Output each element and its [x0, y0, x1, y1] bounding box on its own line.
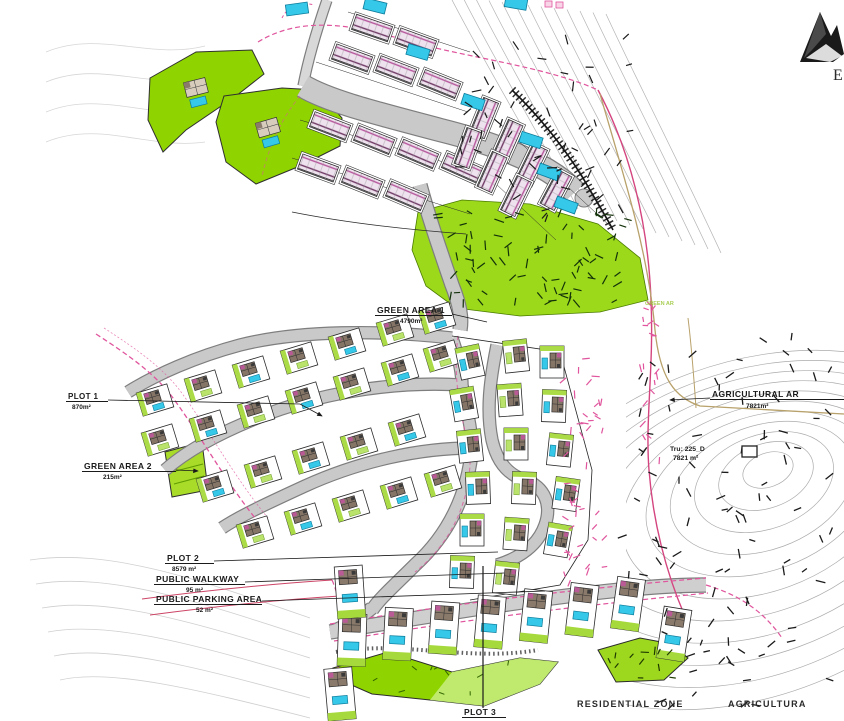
- vegetation-tick: [618, 535, 627, 538]
- vegetation-tick: [619, 225, 626, 227]
- villaNP: [504, 428, 528, 460]
- public-walkway-label: PUBLIC WALKWAY: [156, 574, 239, 584]
- town: [395, 137, 441, 172]
- vegetation-tick: [588, 170, 592, 178]
- residential-zone-label: RESIDENTIAL ZONE: [577, 699, 684, 709]
- green-area-1-size: 4790m²: [400, 318, 423, 325]
- vegetation-tick: [593, 412, 598, 415]
- town: [417, 67, 463, 101]
- contour: [48, 629, 310, 678]
- vegetation-tick: [656, 372, 657, 380]
- public-parking-size: 52 m²: [196, 607, 214, 614]
- vegetation-tick: [788, 627, 796, 628]
- vegetation-tick: [820, 535, 823, 542]
- vegetation-tick: [692, 692, 696, 697]
- vegetation-tick: [602, 428, 603, 434]
- villaT: [324, 667, 356, 721]
- vegetation-tick: [656, 558, 661, 565]
- green-area-2-label: GREEN AREA 2: [84, 461, 152, 471]
- vegetation-tick: [568, 580, 571, 586]
- villaT: [337, 614, 367, 667]
- vegetation-tick: [434, 217, 443, 218]
- vegetation-tick: [738, 649, 745, 653]
- vegetation-tick: [650, 390, 654, 394]
- vegetation-tick: [784, 455, 786, 465]
- vegetation-tick: [743, 680, 751, 681]
- vegetation-tick: [686, 654, 695, 657]
- vegetation-tick: [687, 638, 691, 643]
- villaNP: [280, 342, 318, 374]
- vegetation-tick: [592, 376, 600, 377]
- vegetation-tick: [736, 511, 743, 516]
- green-area-1-label: GREEN AREA 1: [377, 305, 445, 315]
- leader-line: [670, 398, 710, 400]
- contour: [623, 381, 844, 606]
- vegetation-tick: [484, 77, 488, 85]
- villaT: [656, 606, 692, 662]
- vegetation-tick: [726, 372, 734, 378]
- vegetation-tick: [538, 246, 539, 253]
- vegetation-tick: [537, 58, 546, 59]
- vegetation-tick: [640, 421, 646, 427]
- villa: [388, 414, 426, 446]
- vegetation-tick: [642, 435, 645, 440]
- vegetation-tick: [670, 563, 675, 569]
- agricultural-zone-label: AGRICULTURA: [728, 699, 807, 709]
- vegetation-tick: [579, 508, 584, 509]
- pool: [285, 2, 308, 16]
- structure-outline: [742, 446, 757, 457]
- pool: [461, 93, 485, 110]
- villa: [460, 514, 484, 546]
- villaT: [334, 565, 366, 619]
- villaT: [519, 589, 552, 644]
- vegetation-tick: [584, 126, 590, 130]
- vegetation-tick: [585, 167, 594, 171]
- contour: [680, 413, 844, 551]
- vegetation-tick: [546, 234, 547, 243]
- villaT: [383, 607, 414, 660]
- green-strip-light: [430, 658, 558, 706]
- town: [383, 179, 429, 214]
- contour: [30, 557, 310, 618]
- vegetation-tick: [485, 241, 486, 250]
- plot-2-size: 8579 m²: [172, 566, 197, 573]
- vegetation-tick: [716, 495, 725, 499]
- town: [349, 12, 395, 45]
- vegetation-tick: [634, 498, 640, 501]
- vegetation-tick: [586, 379, 591, 385]
- vegetation-tick: [594, 120, 596, 127]
- vegetation-tick: [791, 333, 792, 340]
- contour: [60, 677, 310, 718]
- vegetation-tick: [668, 364, 669, 373]
- vegetation-tick: [759, 493, 760, 500]
- villa: [380, 477, 418, 509]
- vegetation-tick: [560, 378, 566, 383]
- vegetation-tick: [736, 515, 739, 523]
- vegetation-tick: [768, 641, 775, 647]
- villa: [292, 442, 330, 474]
- parcel-ref-line2: 7821 m²: [673, 455, 699, 462]
- vegetation-tick: [495, 119, 502, 125]
- vegetation-tick: [673, 551, 682, 556]
- vegetation-tick: [749, 539, 755, 541]
- vegetation-tick: [595, 511, 599, 515]
- vegetation-tick: [626, 64, 632, 66]
- site-plan-drawing: GREEN AREA 1 4790m² PLOT 1 870m² GREEN A…: [0, 0, 844, 721]
- vegetation-tick: [700, 640, 702, 646]
- villa: [546, 433, 573, 467]
- villa: [456, 429, 483, 463]
- vegetation-tick: [557, 175, 558, 184]
- green-area-2-size: 215m²: [103, 474, 123, 481]
- vegetation-tick: [687, 488, 691, 496]
- vegetation-tick: [708, 619, 714, 627]
- villaNP: [503, 517, 529, 551]
- vegetation-tick: [639, 408, 641, 416]
- vegetation-tick: [564, 572, 566, 577]
- contour: [54, 653, 310, 698]
- public-parking-label: PUBLIC PARKING AREA: [156, 594, 262, 604]
- vegetation-tick: [571, 427, 572, 434]
- vegetation-tick: [719, 657, 725, 663]
- villaNP: [511, 472, 536, 505]
- villaT: [565, 582, 599, 637]
- vegetation-tick: [577, 545, 583, 547]
- vegetation-tick: [601, 399, 602, 406]
- vegetation-tick: [500, 119, 503, 127]
- vegetation-tick: [725, 569, 730, 572]
- vegetation-tick: [640, 364, 642, 372]
- vegetation-tick: [760, 338, 767, 343]
- vegetation-tick: [689, 462, 695, 468]
- vegetation-tick: [623, 34, 629, 39]
- vegetation-tick: [618, 204, 623, 213]
- villa: [449, 386, 478, 422]
- vegetation-tick: [794, 447, 801, 448]
- vegetation-tick: [572, 81, 573, 91]
- vegetation-tick: [654, 380, 655, 385]
- vegetation-tick: [583, 413, 588, 417]
- vegetation-tick: [602, 566, 607, 567]
- vegetation-tick: [716, 569, 723, 572]
- contour: [565, 349, 844, 662]
- vegetation-tick: [472, 90, 482, 92]
- contour: [46, 44, 205, 52]
- vegetation-tick: [759, 654, 765, 656]
- vegetation-tick: [628, 571, 629, 579]
- vegetation-tick: [727, 607, 733, 614]
- parcel-ref-line1: Tru: 225_D: [670, 446, 705, 453]
- plot-1-label: PLOT 1: [68, 392, 99, 401]
- villaNP: [497, 383, 523, 417]
- vegetation-tick: [564, 483, 571, 484]
- vegetation-tick: [715, 378, 718, 385]
- villaNP: [502, 339, 529, 373]
- vegetation-tick: [561, 72, 569, 74]
- logo: E: [800, 12, 844, 84]
- vegetation-tick: [572, 148, 578, 151]
- vegetation-tick: [738, 549, 740, 559]
- vegetation-tick: [592, 524, 597, 529]
- villa: [232, 356, 270, 388]
- villaNP: [492, 561, 519, 595]
- vegetation-tick: [722, 509, 728, 510]
- contour: [42, 605, 310, 658]
- vegetation-tick: [645, 377, 648, 386]
- vegetation-tick: [595, 416, 601, 419]
- vegetation-tick: [594, 403, 598, 407]
- agricultural-area-size: 7821m²: [746, 403, 769, 410]
- vegetation-tick: [599, 399, 600, 405]
- vegetation-tick: [586, 426, 591, 431]
- vegetation-tick: [743, 514, 746, 522]
- vegetation-tick: [548, 300, 556, 301]
- vegetation-tick: [643, 308, 648, 310]
- vegetation-tick: [648, 321, 654, 325]
- vegetation-tick: [703, 651, 710, 652]
- vegetation-tick: [639, 574, 647, 576]
- vegetation-tick: [669, 405, 670, 412]
- vegetation-tick: [576, 510, 577, 517]
- contour: [606, 14, 721, 253]
- town: [373, 53, 419, 87]
- vegetation-tick: [767, 495, 771, 500]
- vegetation-tick: [643, 317, 644, 322]
- vegetation-tick: [586, 568, 589, 576]
- villaNP: [184, 370, 222, 402]
- vegetation-tick: [547, 108, 550, 117]
- vegetation-tick: [687, 518, 689, 527]
- vegetation-tick: [692, 435, 702, 437]
- villa: [449, 556, 474, 589]
- vegetation-tick: [604, 148, 609, 155]
- pool: [363, 0, 387, 14]
- vegetation-tick: [813, 372, 816, 381]
- hillside-note: GREEN AR: [645, 301, 674, 307]
- villa: [465, 472, 490, 505]
- vegetation-tick: [713, 587, 716, 597]
- vegetation-tick: [802, 569, 807, 573]
- villaNP: [332, 490, 370, 522]
- plot-2-label: PLOT 2: [167, 553, 199, 563]
- villaT: [474, 595, 506, 649]
- contour: [537, 333, 844, 690]
- vegetation-tick: [562, 516, 568, 520]
- vegetation-tick: [826, 678, 833, 680]
- plot-3-label: PLOT 3: [464, 707, 496, 717]
- vegetation-tick: [582, 358, 590, 359]
- vegetation-tick: [779, 431, 788, 434]
- vegetation-tick: [593, 537, 597, 540]
- town: [329, 41, 375, 74]
- villaNP: [237, 396, 275, 428]
- vegetation-tick: [464, 109, 471, 115]
- vegetation-tick: [586, 462, 587, 469]
- vegetation-tick: [787, 640, 796, 642]
- vegetation-tick: [489, 86, 494, 93]
- vegetation-tick: [829, 527, 832, 534]
- vegetation-tick: [511, 101, 515, 107]
- vegetation-tick: [658, 546, 667, 548]
- vegetation-tick: [825, 409, 831, 415]
- public-walkway-size: 95 m²: [186, 587, 204, 594]
- vegetation-tick: [689, 351, 696, 358]
- agricultural-area-label: AGRICULTURAL AR: [712, 389, 799, 399]
- vegetation-tick: [587, 129, 592, 135]
- vegetation-tick: [762, 482, 768, 485]
- villa: [541, 390, 566, 423]
- vegetation-tick: [669, 677, 675, 678]
- town: [339, 165, 385, 199]
- vegetation-tick: [579, 123, 583, 129]
- vegetation-tick: [784, 559, 790, 563]
- vegetation-tick: [794, 508, 801, 511]
- vegetation-tick: [639, 373, 643, 379]
- vegetation-tick: [816, 580, 826, 582]
- vegetation-tick: [786, 443, 790, 449]
- villa: [284, 503, 322, 535]
- vegetation-tick: [737, 359, 743, 361]
- vegetation-tick: [602, 535, 607, 540]
- villaNP: [244, 456, 282, 488]
- pool: [504, 0, 528, 10]
- contour: [580, 11, 695, 245]
- villa: [540, 346, 564, 378]
- villa: [285, 382, 323, 414]
- villaT: [428, 601, 460, 655]
- vegetation-tick: [492, 62, 494, 70]
- plot-1-size: 870m²: [72, 404, 92, 411]
- logo-letter: E: [833, 67, 843, 84]
- site-plan: GREEN AREA 1 4790m² PLOT 1 870m² GREEN A…: [0, 0, 844, 721]
- vegetation-tick: [689, 670, 697, 672]
